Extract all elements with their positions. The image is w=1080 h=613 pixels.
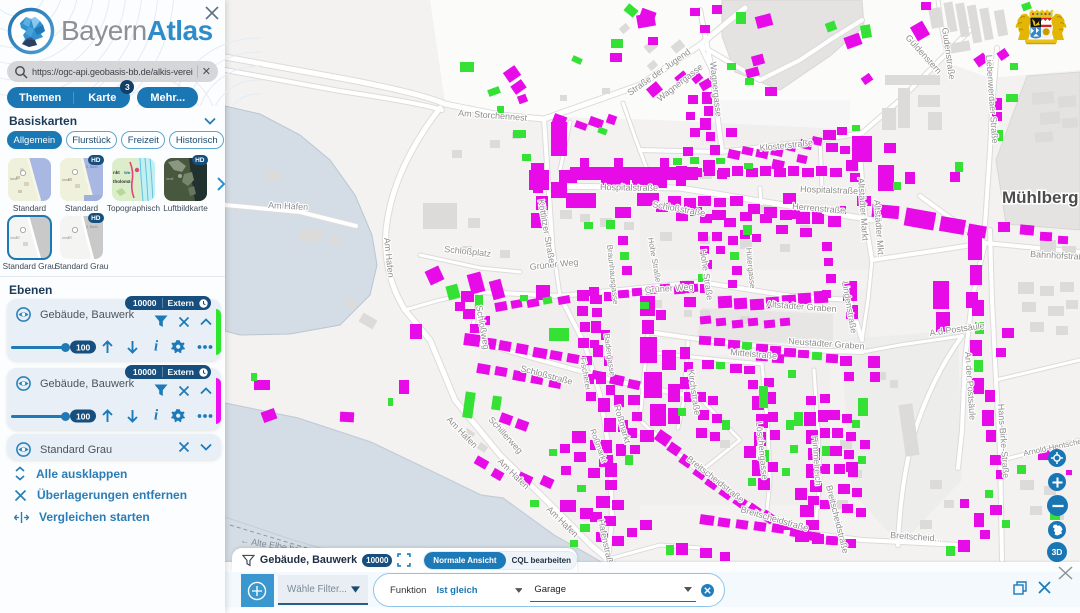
- svg-text:lomä: lomä: [62, 178, 69, 182]
- svg-text:lomä: lomä: [10, 236, 17, 240]
- svg-text:Mühlberg: Mühlberg: [1002, 188, 1079, 207]
- svg-text:Hospitalstraße: Hospitalstraße: [600, 182, 658, 193]
- svg-text:Am Hafen: Am Hafen: [268, 200, 308, 212]
- svg-text:Wtr: Wtr: [124, 170, 131, 175]
- svg-text:S. Barth: S. Barth: [86, 225, 98, 229]
- svg-text:lomä: lomä: [62, 236, 69, 240]
- svg-text:nkt: nkt: [113, 170, 120, 175]
- svg-text:lomä: lomä: [166, 177, 173, 181]
- svg-text:lomä: lomä: [10, 177, 17, 181]
- svg-text:tholomä: tholomä: [113, 179, 131, 184]
- svg-text:Hospitalstraße: Hospitalstraße: [800, 184, 858, 196]
- svg-text:S. Barth: S. Barth: [86, 165, 98, 169]
